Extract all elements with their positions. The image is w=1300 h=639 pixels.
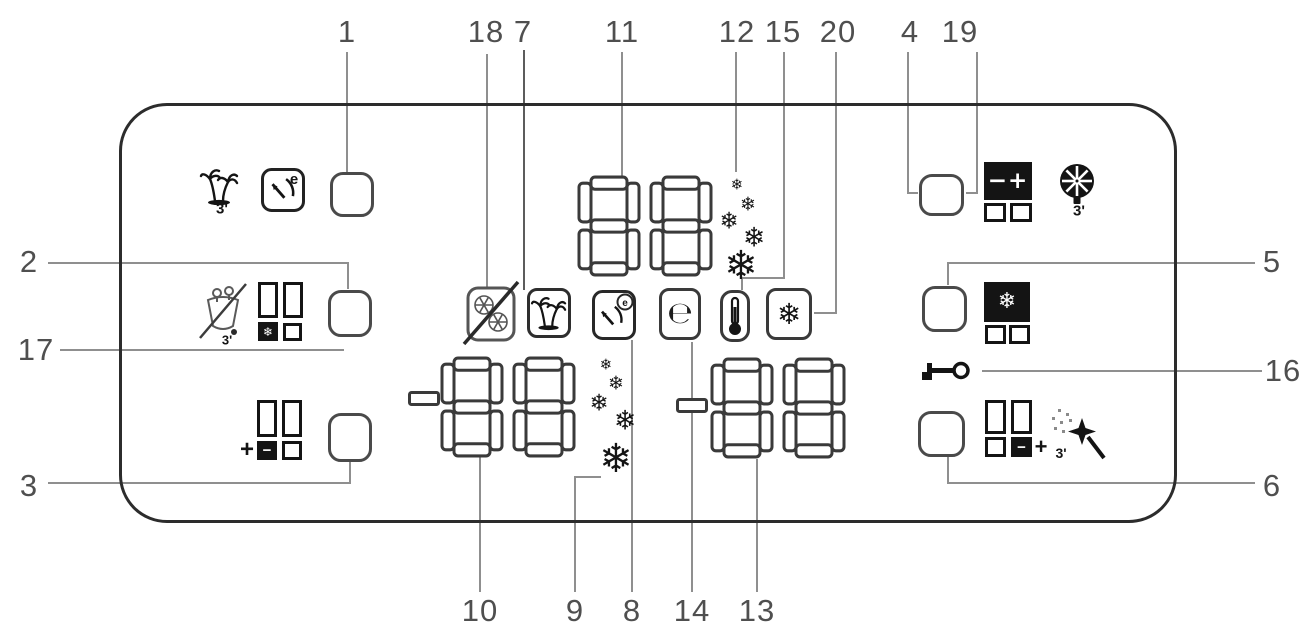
snowflake-scale-2: ❄ bbox=[608, 375, 624, 394]
holiday-mode-button[interactable] bbox=[330, 172, 374, 217]
grid-pane bbox=[985, 437, 1006, 457]
fan-wheel-icon bbox=[1054, 160, 1100, 208]
callout-5: 5 bbox=[1263, 244, 1281, 280]
callout-2: 2 bbox=[20, 244, 38, 280]
freezer-mode-button[interactable] bbox=[922, 286, 967, 332]
left-display bbox=[440, 356, 576, 458]
gauge-e-letter: e bbox=[622, 298, 628, 309]
eco-mode-box-icon: e bbox=[592, 290, 636, 340]
minus-sign: − bbox=[1017, 440, 1026, 455]
grid-minus-icon: − bbox=[257, 400, 302, 460]
fridge-mode-button[interactable] bbox=[328, 290, 372, 337]
callout-10: 10 bbox=[462, 593, 498, 629]
snowflake-scale-1: ❄ bbox=[731, 178, 744, 193]
bottle-3-marker: 3' bbox=[222, 333, 232, 348]
snowflake-box-icon: ❄ bbox=[766, 288, 812, 340]
grid-pane bbox=[984, 203, 1006, 222]
callout-1: 1 bbox=[338, 14, 356, 50]
eco-gauge-box-icon: e bbox=[261, 168, 305, 212]
grid-snowflake-icon: ❄ bbox=[258, 282, 303, 342]
grid-pane-snowflake: ❄ bbox=[258, 322, 278, 341]
minus-sign: − bbox=[263, 443, 272, 458]
callout-7: 7 bbox=[514, 14, 532, 50]
superfreeze-button[interactable] bbox=[918, 411, 965, 457]
plus-sign: + bbox=[240, 438, 254, 462]
no-frost-off-box-icon bbox=[460, 278, 522, 348]
callout-14: 14 bbox=[674, 593, 710, 629]
snowflake-icon: ❄ bbox=[263, 326, 273, 338]
grid-superfreeze-icon: − bbox=[985, 400, 1032, 458]
e-symbol: ℮ bbox=[667, 299, 693, 329]
grid-pane bbox=[257, 400, 277, 437]
freezer-temp-button[interactable] bbox=[919, 174, 964, 216]
snowflake-icon: ❄ bbox=[777, 300, 801, 329]
key-lock-icon bbox=[921, 360, 971, 382]
callout-3: 3 bbox=[20, 468, 38, 504]
grid-pane-snowflake: ❄ bbox=[984, 282, 1030, 322]
holiday-box-icon bbox=[527, 288, 571, 338]
snowflake-scale-3: ❄ bbox=[589, 393, 608, 416]
callout-9: 9 bbox=[566, 593, 584, 629]
callout-8: 8 bbox=[623, 593, 641, 629]
thermometer-box-icon bbox=[720, 290, 750, 342]
callout-11: 11 bbox=[605, 14, 639, 50]
left-display-minus bbox=[408, 391, 440, 406]
grid-pane bbox=[1009, 325, 1030, 344]
snowflake-icon: ❄ bbox=[998, 291, 1016, 313]
snowflake-scale-5: ❄ bbox=[724, 246, 758, 286]
grid-pane bbox=[283, 323, 302, 341]
callout-15: 15 bbox=[765, 14, 801, 50]
grid-pane bbox=[282, 400, 302, 437]
main-display bbox=[577, 175, 713, 277]
right-display-minus bbox=[676, 398, 708, 413]
fan-3-marker: 3' bbox=[1073, 203, 1085, 220]
holiday-3-marker: 3' bbox=[216, 201, 228, 218]
callout-16: 16 bbox=[1265, 353, 1300, 389]
grid-pane bbox=[985, 400, 1006, 434]
grid-pane bbox=[258, 282, 278, 318]
grid-pane bbox=[283, 282, 303, 318]
snowflake-scale-3: ❄ bbox=[719, 211, 738, 234]
callout-6: 6 bbox=[1263, 468, 1281, 504]
eco-e-letter: e bbox=[290, 171, 298, 188]
grid-pane bbox=[1010, 203, 1032, 222]
callout-17: 17 bbox=[18, 332, 54, 368]
callout-18: 18 bbox=[468, 14, 504, 50]
e-mode-box-icon: ℮ bbox=[659, 288, 701, 340]
grid-pane-minus-plus: −+ bbox=[984, 162, 1032, 200]
grid-pane bbox=[1011, 400, 1032, 434]
grid-pane bbox=[282, 441, 302, 460]
snowflake-scale-5: ❄ bbox=[599, 439, 633, 479]
thermometer-icon bbox=[723, 293, 747, 339]
wand-3-marker: 3' bbox=[1055, 445, 1066, 461]
callout-4: 4 bbox=[901, 14, 919, 50]
grid-pane bbox=[985, 325, 1006, 344]
callout-13: 13 bbox=[739, 593, 775, 629]
callout-12: 12 bbox=[719, 14, 755, 50]
fridge-temp-button[interactable] bbox=[328, 413, 372, 462]
grid-pane-minus: − bbox=[1011, 437, 1032, 457]
snowflake-scale-1: ❄ bbox=[600, 358, 613, 373]
grid-pane-minus: − bbox=[257, 441, 277, 460]
grid-minus-plus-icon: −+ bbox=[984, 162, 1032, 222]
right-display bbox=[710, 357, 846, 459]
callout-20: 20 bbox=[820, 14, 856, 50]
snowflake-scale-4: ❄ bbox=[614, 408, 637, 435]
grid-freeze-icon: ❄ bbox=[984, 282, 1030, 344]
callout-19: 19 bbox=[942, 14, 978, 50]
diagram-stage: 1 18 7 11 12 15 20 4 19 2 17 3 5 16 6 10… bbox=[0, 0, 1300, 639]
snowflake-scale-2: ❄ bbox=[740, 196, 756, 215]
minus-plus-sign: −+ bbox=[988, 168, 1029, 194]
